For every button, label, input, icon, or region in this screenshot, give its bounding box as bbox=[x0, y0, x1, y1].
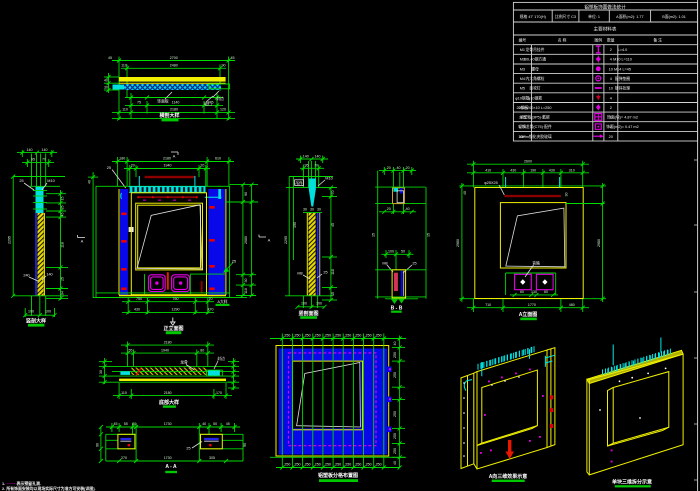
svg-text:M10: M10 bbox=[47, 179, 54, 183]
svg-text:吊件: 吊件 bbox=[295, 180, 303, 185]
svg-text:110: 110 bbox=[121, 64, 127, 68]
svg-text:A向三维效果示意: A向三维效果示意 bbox=[489, 473, 528, 480]
svg-text:30: 30 bbox=[565, 193, 569, 197]
svg-text:2700: 2700 bbox=[170, 56, 178, 60]
svg-text:250: 250 bbox=[325, 463, 331, 467]
svg-text:30: 30 bbox=[104, 86, 108, 90]
svg-text:底部大样: 底部大样 bbox=[158, 399, 179, 406]
svg-text:饰面(m2)= 0.47 m2: 饰面(m2)= 0.47 m2 bbox=[606, 124, 638, 129]
svg-text:封边: 封边 bbox=[216, 96, 224, 101]
svg-text:25: 25 bbox=[61, 206, 65, 210]
svg-text:M5: M5 bbox=[520, 87, 525, 91]
svg-text:25: 25 bbox=[19, 179, 23, 183]
svg-text:250: 250 bbox=[393, 411, 397, 417]
svg-text:饰面(块)= 4.87 m2: 饰面(块)= 4.87 m2 bbox=[607, 115, 638, 120]
svg-text:比例尺寸 C3: 比例尺寸 C3 bbox=[555, 14, 576, 19]
svg-text:2180: 2180 bbox=[164, 340, 172, 344]
svg-text:410: 410 bbox=[485, 169, 491, 173]
svg-text:55: 55 bbox=[124, 422, 128, 426]
svg-text:20: 20 bbox=[387, 207, 391, 211]
svg-text:10: 10 bbox=[609, 67, 613, 71]
svg-text:单位: 1: 单位: 1 bbox=[588, 14, 600, 19]
svg-text:编号: 编号 bbox=[519, 38, 527, 43]
svg-text:30: 30 bbox=[317, 208, 321, 212]
svg-text:配弹垫圈: 配弹垫圈 bbox=[615, 76, 630, 81]
svg-text:4: 4 bbox=[610, 77, 612, 81]
svg-text:45: 45 bbox=[231, 56, 235, 60]
svg-text:118: 118 bbox=[61, 242, 65, 248]
svg-text:80L40钢方通: 80L40钢方通 bbox=[524, 57, 546, 62]
svg-text:80: 80 bbox=[200, 348, 204, 352]
svg-text:自攻钉: 自攻钉 bbox=[529, 86, 541, 91]
svg-text:30: 30 bbox=[303, 208, 307, 212]
svg-text:1730: 1730 bbox=[164, 456, 172, 460]
svg-text:250: 250 bbox=[284, 333, 290, 337]
svg-text:100: 100 bbox=[388, 250, 394, 254]
svg-text:140: 140 bbox=[46, 273, 52, 277]
svg-text:610: 610 bbox=[215, 157, 221, 161]
svg-text:45: 45 bbox=[108, 56, 112, 60]
svg-text:铝塑板(3P5)·氟碳: 铝塑板(3P5)·氟碳 bbox=[520, 115, 550, 120]
svg-text:70: 70 bbox=[331, 191, 335, 195]
svg-text:180: 180 bbox=[119, 157, 125, 161]
svg-text:25: 25 bbox=[107, 166, 111, 170]
svg-text:15: 15 bbox=[61, 197, 65, 201]
svg-text:M8: M8 bbox=[297, 272, 302, 276]
svg-text:20: 20 bbox=[131, 164, 135, 168]
svg-text:A: A bbox=[81, 240, 84, 244]
svg-text:横剖大样: 横剖大样 bbox=[158, 112, 179, 119]
svg-text:45: 45 bbox=[114, 422, 118, 426]
svg-text:100: 100 bbox=[301, 302, 307, 306]
svg-text:15: 15 bbox=[426, 233, 430, 237]
svg-text:2. 所有饰面安装均以现场实际尺寸为准方可安装[详图].: 2. 所有饰面安装均以现场实际尺寸为准方可安装[详图]. bbox=[2, 486, 96, 491]
svg-text:70: 70 bbox=[42, 158, 46, 162]
svg-text:40: 40 bbox=[393, 461, 397, 465]
svg-text:250: 250 bbox=[335, 333, 341, 337]
svg-text:250: 250 bbox=[305, 463, 311, 467]
svg-text:90: 90 bbox=[243, 443, 247, 447]
svg-text:55: 55 bbox=[129, 348, 133, 352]
svg-text:封边: 封边 bbox=[217, 356, 225, 361]
svg-text:2080: 2080 bbox=[244, 236, 248, 244]
svg-text:75: 75 bbox=[137, 101, 141, 105]
svg-text:90: 90 bbox=[222, 64, 226, 68]
svg-text:30: 30 bbox=[244, 279, 248, 283]
svg-text:25: 25 bbox=[232, 260, 236, 264]
svg-text:250: 250 bbox=[335, 463, 341, 467]
svg-text:铝塑板饰面做法统计: 铝塑板饰面做法统计 bbox=[584, 4, 626, 11]
svg-text:45: 45 bbox=[61, 213, 65, 217]
svg-text:A大样: A大样 bbox=[217, 299, 227, 304]
svg-text:内六角螺栓: 内六角螺栓 bbox=[526, 76, 545, 81]
svg-text:250: 250 bbox=[366, 463, 372, 467]
svg-text:镀锌处理: 镀锌处理 bbox=[615, 86, 630, 91]
svg-text:1770: 1770 bbox=[528, 303, 536, 307]
svg-text:250: 250 bbox=[315, 463, 321, 467]
svg-text:95: 95 bbox=[31, 158, 35, 162]
svg-text:正立面图: 正立面图 bbox=[163, 325, 183, 332]
svg-text:140: 140 bbox=[42, 148, 48, 152]
svg-text:1140: 1140 bbox=[172, 101, 180, 105]
svg-text:A: A bbox=[173, 155, 176, 159]
svg-text:250: 250 bbox=[376, 333, 382, 337]
svg-text:60: 60 bbox=[520, 290, 524, 294]
svg-text:305: 305 bbox=[209, 456, 215, 460]
svg-text:2480: 2480 bbox=[170, 64, 178, 68]
svg-text:螺母: 螺母 bbox=[531, 66, 539, 71]
svg-text:A: A bbox=[268, 239, 271, 243]
svg-text:图例: 图例 bbox=[595, 38, 603, 43]
svg-text:250: 250 bbox=[315, 333, 321, 337]
svg-text:20: 20 bbox=[387, 166, 391, 170]
svg-text:430: 430 bbox=[134, 308, 140, 312]
svg-text:10: 10 bbox=[609, 87, 613, 91]
svg-text:2180: 2180 bbox=[163, 157, 171, 161]
svg-text:20: 20 bbox=[200, 164, 204, 168]
svg-text:140: 140 bbox=[27, 148, 33, 152]
svg-text:2980: 2980 bbox=[597, 239, 601, 247]
svg-text:2180: 2180 bbox=[170, 108, 178, 112]
svg-text:2: 2 bbox=[610, 48, 612, 52]
svg-text:250: 250 bbox=[393, 352, 397, 358]
svg-text:竖剖面图: 竖剖面图 bbox=[298, 310, 318, 317]
svg-text:250: 250 bbox=[393, 433, 397, 439]
svg-text:2295: 2295 bbox=[284, 236, 288, 244]
svg-text:710: 710 bbox=[485, 303, 491, 307]
svg-text:40: 40 bbox=[393, 342, 397, 346]
svg-text:2600: 2600 bbox=[524, 160, 532, 164]
svg-text:250: 250 bbox=[295, 333, 301, 337]
svg-text:118: 118 bbox=[331, 269, 335, 275]
svg-text:B面(m2): 1.01: B面(m2): 1.01 bbox=[662, 14, 686, 19]
svg-text:M4: M4 bbox=[520, 77, 525, 81]
svg-text:20: 20 bbox=[406, 166, 410, 170]
svg-text:250: 250 bbox=[376, 463, 382, 467]
svg-text:170: 170 bbox=[216, 391, 222, 395]
svg-text:M1: M1 bbox=[520, 48, 525, 52]
svg-text:30: 30 bbox=[310, 208, 314, 212]
svg-text:250: 250 bbox=[393, 372, 397, 378]
svg-text:2980: 2980 bbox=[456, 239, 460, 247]
svg-text:L=4.0: L=4.0 bbox=[618, 48, 628, 52]
svg-text:2180: 2180 bbox=[164, 391, 172, 395]
svg-text:430: 430 bbox=[549, 169, 555, 173]
svg-text:规格 47′ 170(H): 规格 47′ 170(H) bbox=[520, 14, 547, 19]
svg-text:15: 15 bbox=[372, 233, 376, 237]
svg-text:70: 70 bbox=[314, 164, 318, 168]
svg-text:2: 2 bbox=[610, 106, 612, 110]
svg-text:M3: M3 bbox=[520, 67, 525, 71]
svg-text:1940: 1940 bbox=[161, 348, 169, 352]
svg-text:M8: M8 bbox=[382, 261, 387, 265]
svg-text:φ25X25: φ25X25 bbox=[484, 181, 497, 185]
svg-text:30: 30 bbox=[99, 370, 103, 374]
svg-text:4: 4 bbox=[610, 58, 612, 62]
svg-text:备 注: 备 注 bbox=[653, 38, 662, 43]
svg-text:饰面板: 饰面板 bbox=[157, 99, 169, 104]
svg-text:铝塑板分格布置图: 铝塑板分格布置图 bbox=[318, 472, 358, 479]
svg-text:250: 250 bbox=[355, 333, 361, 337]
svg-text:470: 470 bbox=[208, 308, 214, 312]
svg-text:50: 50 bbox=[401, 250, 405, 254]
svg-text:190: 190 bbox=[530, 169, 536, 173]
svg-text:310: 310 bbox=[569, 169, 575, 173]
svg-text:250: 250 bbox=[345, 463, 351, 467]
svg-text:M10 L=110: M10 L=110 bbox=[613, 58, 632, 62]
svg-text:25: 25 bbox=[186, 447, 190, 451]
svg-text:430: 430 bbox=[510, 169, 516, 173]
svg-text:25: 25 bbox=[323, 271, 327, 275]
svg-text:25: 25 bbox=[61, 277, 65, 281]
svg-text:190: 190 bbox=[293, 222, 297, 228]
svg-text:数量: 数量 bbox=[607, 38, 615, 43]
svg-text:名 称: 名 称 bbox=[558, 38, 567, 43]
svg-text:110: 110 bbox=[121, 391, 127, 395]
svg-text:龙骨吊挂件: 龙骨吊挂件 bbox=[526, 47, 545, 52]
svg-text:270: 270 bbox=[121, 456, 127, 460]
svg-text:40: 40 bbox=[104, 79, 108, 83]
svg-text:A - A: A - A bbox=[165, 464, 177, 470]
svg-text:收口: 收口 bbox=[204, 102, 212, 107]
svg-text:130: 130 bbox=[531, 290, 537, 294]
svg-text:M10: M10 bbox=[325, 177, 332, 181]
svg-text:45: 45 bbox=[331, 223, 335, 227]
svg-text:110: 110 bbox=[122, 108, 128, 112]
svg-text:40: 40 bbox=[88, 180, 92, 184]
svg-text:音箱: 音箱 bbox=[532, 260, 540, 265]
svg-text:20: 20 bbox=[609, 135, 613, 139]
svg-text:1290: 1290 bbox=[172, 308, 180, 312]
svg-text:250: 250 bbox=[355, 463, 361, 467]
svg-text:250: 250 bbox=[393, 448, 397, 454]
svg-text:40: 40 bbox=[406, 207, 410, 211]
svg-text:250: 250 bbox=[366, 333, 372, 337]
svg-text:A面积(m2): 1.77: A面积(m2): 1.77 bbox=[616, 14, 643, 19]
svg-text:30: 30 bbox=[132, 422, 136, 426]
svg-text:250: 250 bbox=[295, 463, 301, 467]
svg-text:110: 110 bbox=[244, 288, 248, 294]
svg-text:95: 95 bbox=[305, 164, 309, 168]
svg-text:100: 100 bbox=[28, 310, 34, 314]
svg-text:250: 250 bbox=[325, 333, 331, 337]
svg-text:140: 140 bbox=[303, 154, 309, 158]
svg-text:60: 60 bbox=[544, 290, 548, 294]
svg-text:100: 100 bbox=[316, 302, 322, 306]
svg-text:40: 40 bbox=[463, 191, 467, 195]
svg-text:φ10钢筋: φ10钢筋 bbox=[528, 95, 542, 100]
svg-text:100: 100 bbox=[45, 310, 51, 314]
svg-text:1940: 1940 bbox=[164, 164, 172, 168]
svg-text:90: 90 bbox=[95, 443, 99, 447]
svg-text:250: 250 bbox=[345, 333, 351, 337]
svg-text:120: 120 bbox=[220, 108, 226, 112]
svg-text:240: 240 bbox=[23, 274, 29, 278]
svg-text:A立面图: A立面图 bbox=[519, 311, 538, 318]
svg-text:单块三维拆分示意: 单块三维拆分示意 bbox=[612, 479, 652, 486]
svg-text:龙骨: 龙骨 bbox=[180, 360, 188, 365]
svg-text:250: 250 bbox=[284, 463, 290, 467]
svg-text:40: 40 bbox=[397, 166, 401, 170]
svg-text:25: 25 bbox=[412, 261, 416, 265]
svg-text:200×200×10 L=250: 200×200×10 L=250 bbox=[518, 106, 551, 110]
svg-text:750: 750 bbox=[136, 297, 142, 301]
svg-text:50: 50 bbox=[213, 422, 217, 426]
svg-text:40: 40 bbox=[202, 422, 206, 426]
svg-text:M14 L=45: M14 L=45 bbox=[614, 67, 631, 71]
svg-text:主要材料表: 主要材料表 bbox=[594, 25, 617, 32]
svg-text:45: 45 bbox=[226, 422, 230, 426]
svg-text:760: 760 bbox=[173, 297, 179, 301]
svg-text:轻钢龙骨(C75)·配件: 轻钢龙骨(C75)·配件 bbox=[518, 124, 552, 129]
svg-text:70: 70 bbox=[209, 297, 213, 301]
svg-text:90: 90 bbox=[244, 192, 248, 196]
svg-text:250: 250 bbox=[305, 333, 311, 337]
svg-text:4: 4 bbox=[610, 96, 612, 100]
svg-text:竖剖大样: 竖剖大样 bbox=[26, 318, 46, 325]
svg-text:10mm钢化夹胶玻璃: 10mm钢化夹胶玻璃 bbox=[518, 134, 552, 139]
svg-text:480: 480 bbox=[569, 303, 575, 307]
svg-text:2295: 2295 bbox=[8, 236, 12, 244]
svg-text:1730: 1730 bbox=[164, 422, 172, 426]
svg-text:140: 140 bbox=[315, 154, 321, 158]
